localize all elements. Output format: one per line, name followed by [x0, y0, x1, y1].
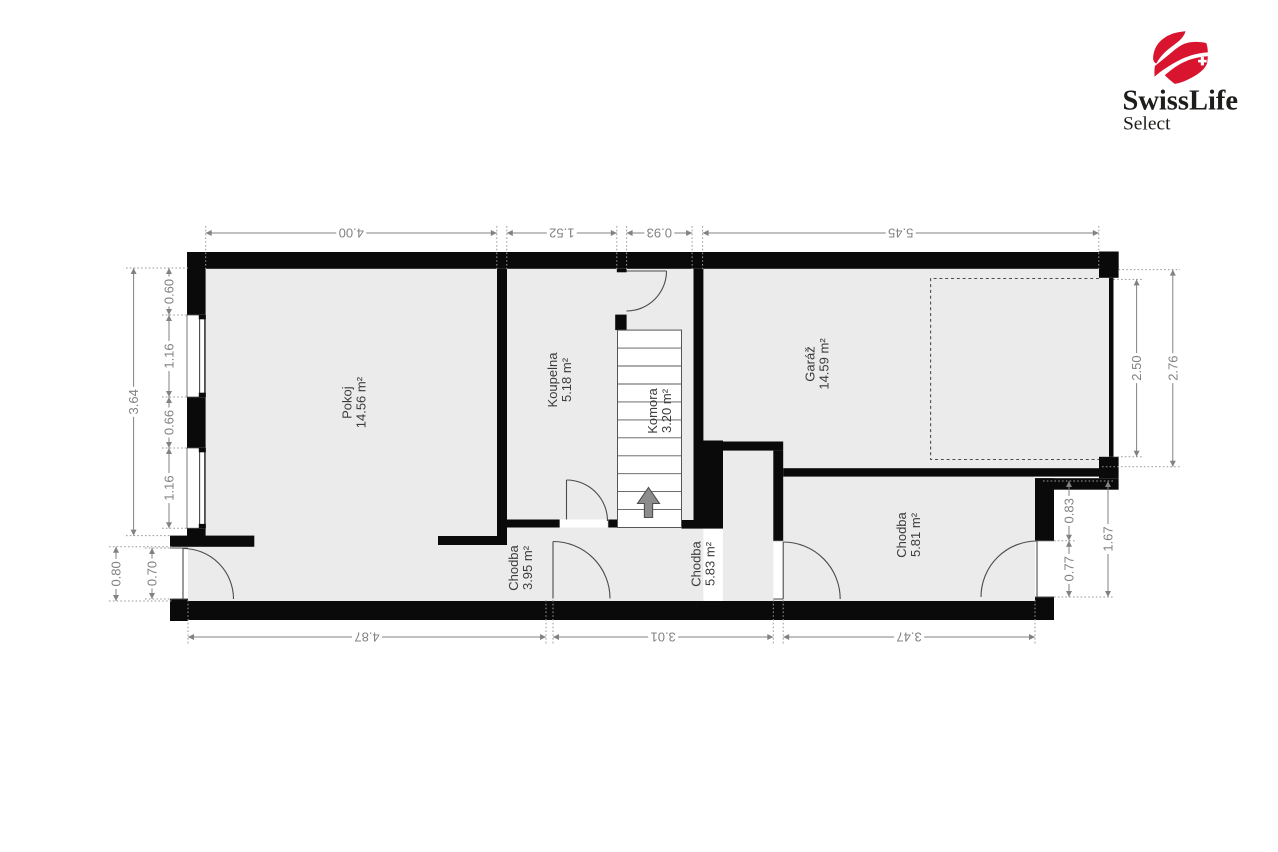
svg-text:Select: Select [1123, 113, 1171, 134]
svg-text:Chodba3.95 m²: Chodba3.95 m² [506, 544, 535, 590]
svg-text:0.70: 0.70 [145, 561, 160, 586]
svg-text:0.83: 0.83 [1062, 498, 1077, 523]
svg-text:1.67: 1.67 [1101, 526, 1116, 551]
svg-text:0.77: 0.77 [1062, 556, 1077, 581]
svg-text:Chodba5.81 m²: Chodba5.81 m² [894, 511, 923, 557]
svg-text:1.16: 1.16 [162, 343, 177, 368]
svg-text:Chodba5.83 m²: Chodba5.83 m² [689, 540, 718, 586]
svg-text:Koupelna5.18 m²: Koupelna5.18 m² [545, 352, 574, 408]
svg-text:4.87: 4.87 [354, 629, 379, 644]
svg-text:1.16: 1.16 [162, 475, 177, 500]
svg-text:4.00: 4.00 [339, 225, 364, 240]
svg-text:SwissLife: SwissLife [1123, 86, 1239, 117]
svg-text:5.45: 5.45 [888, 225, 913, 240]
svg-text:3.01: 3.01 [650, 629, 675, 644]
svg-text:0.60: 0.60 [162, 279, 177, 304]
svg-text:3.47: 3.47 [896, 629, 921, 644]
svg-text:3.64: 3.64 [126, 389, 141, 414]
svg-text:1.52: 1.52 [549, 225, 574, 240]
svg-text:0.66: 0.66 [162, 410, 177, 435]
svg-text:0.93: 0.93 [647, 225, 672, 240]
svg-text:0.80: 0.80 [109, 561, 124, 586]
svg-text:2.76: 2.76 [1165, 355, 1180, 380]
svg-text:Komora3.20 m²: Komora3.20 m² [645, 387, 674, 433]
svg-text:2.50: 2.50 [1129, 355, 1144, 380]
